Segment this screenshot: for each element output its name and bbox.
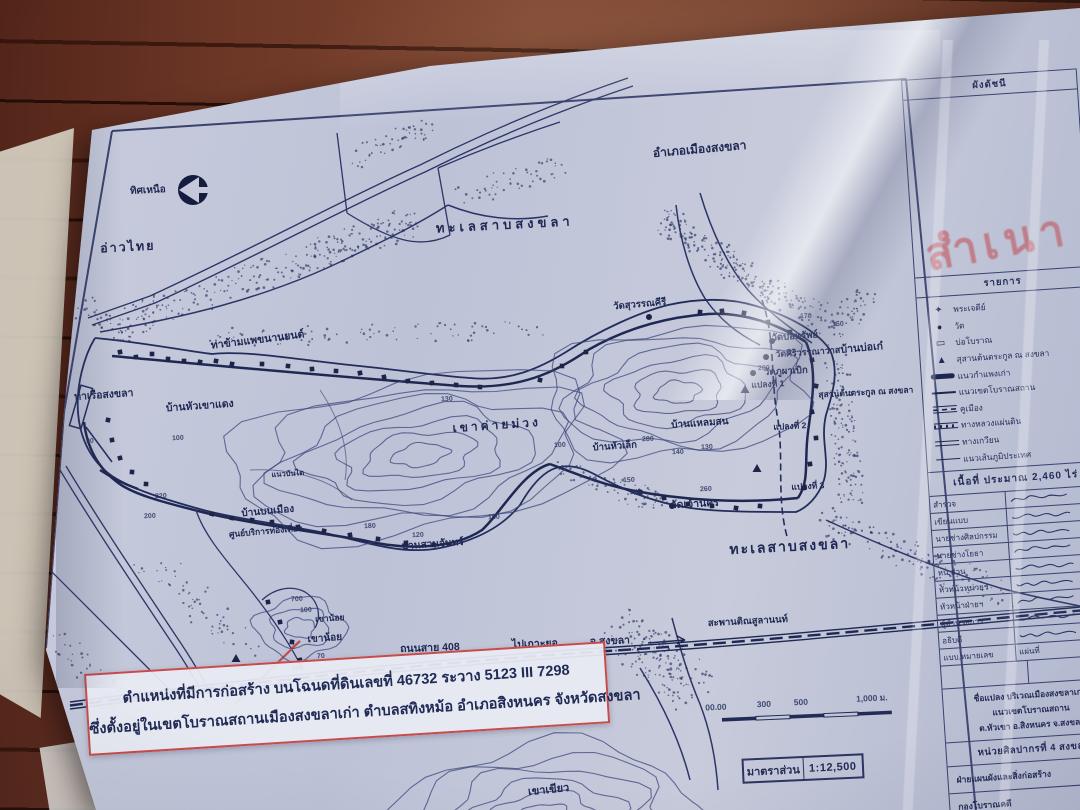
stipple-dot <box>694 234 697 237</box>
stipple-dot <box>119 318 120 319</box>
stipple-dot <box>856 308 858 310</box>
stipple-dot <box>785 292 787 294</box>
map-label: เขาน้อย <box>315 612 345 624</box>
stipple-dot <box>530 173 532 175</box>
building-square <box>454 383 459 388</box>
stipple-dot <box>831 521 833 523</box>
stipple-dot <box>614 489 616 491</box>
stipple-dot <box>654 491 656 493</box>
stipple-dot <box>914 552 917 555</box>
map-label: บ้านสวนจันทร์ <box>401 536 464 552</box>
stipple-dot <box>842 525 844 527</box>
building-square <box>814 436 819 441</box>
stipple-dot <box>693 244 696 247</box>
stipple-dot <box>792 290 793 291</box>
stipple-dot <box>330 261 332 263</box>
stipple-dot <box>742 267 745 270</box>
stipple-dot <box>682 213 684 215</box>
stipple-dot <box>580 465 582 467</box>
contour-ring <box>264 394 569 516</box>
stipple-dot <box>185 289 188 292</box>
stipple-dot <box>853 430 855 432</box>
stipple-dot <box>413 125 415 127</box>
bound-icon <box>929 391 959 395</box>
stipple-dot <box>860 297 863 300</box>
stipple-dot <box>617 492 619 494</box>
stipple-dot <box>644 653 646 655</box>
stipple-dot <box>410 224 412 226</box>
stipple-dot <box>737 264 739 266</box>
stipple-dot <box>662 650 664 652</box>
stipple-dot <box>759 286 762 289</box>
stipple-dot <box>672 700 674 702</box>
stipple-dot <box>684 242 687 245</box>
tri-icon: ▲ <box>926 354 957 367</box>
map-label: อำเภอเมืองสงขลา <box>652 138 747 160</box>
building-square <box>265 599 270 604</box>
stipple-dot <box>849 454 851 456</box>
stipple-dot <box>290 277 291 278</box>
stipple-dot <box>648 670 650 672</box>
stipple-dot <box>368 155 370 157</box>
stipple-dot <box>307 265 309 267</box>
map-label: เขาน้อย <box>307 631 342 645</box>
stipple-dot <box>656 492 658 494</box>
stipple-dot <box>621 487 623 489</box>
stipple-dot <box>328 235 331 238</box>
stipple-dot <box>688 250 691 253</box>
stipple-dot <box>420 128 423 131</box>
stipple-dot <box>833 519 835 521</box>
stipple-dot <box>109 315 111 317</box>
stipple-dot <box>622 649 624 651</box>
stipple-dot <box>282 275 283 276</box>
building-square <box>260 362 265 367</box>
stipple-dot <box>638 633 641 636</box>
building-square <box>130 470 135 475</box>
stipple-dot <box>837 380 839 382</box>
cemetery-triangle-icon <box>741 385 750 393</box>
map-label: ท่าเรือสงขลา <box>74 386 134 403</box>
stipple-dot <box>834 443 836 445</box>
stipple-dot <box>86 668 88 670</box>
stipple-dot <box>244 265 245 266</box>
stipple-dot <box>432 130 434 132</box>
index-map-box: สำเนา <box>903 89 1080 278</box>
stipple-dot <box>820 317 822 319</box>
stipple-dot <box>795 295 797 297</box>
stipple-dot <box>302 267 305 270</box>
legend-label: บ่อโบราณ <box>955 333 993 349</box>
stipple-dot <box>770 280 773 283</box>
stipple-dot <box>852 316 853 317</box>
stipple-dot <box>668 634 671 637</box>
stipple-dot <box>848 404 850 406</box>
stipple-dot <box>670 221 672 223</box>
stipple-dot <box>401 220 403 222</box>
stipple-dot <box>407 214 409 216</box>
stipple-dot <box>648 677 649 678</box>
stipple-dot <box>415 222 417 224</box>
stipple-dot <box>824 319 826 321</box>
stipple-dot <box>156 307 158 309</box>
stipple-dot <box>376 227 379 230</box>
stipple-dot <box>680 670 682 672</box>
stipple-dot <box>392 212 395 215</box>
stipple-dot <box>366 141 368 143</box>
stipple-dot <box>497 187 498 188</box>
stipple-dot <box>83 308 86 311</box>
stipple-dot <box>234 267 236 269</box>
stipple-dot <box>928 560 930 562</box>
stipple-dot <box>413 212 415 214</box>
stipple-dot <box>314 247 317 250</box>
stipple-dot <box>678 224 681 227</box>
stipple-dot <box>673 228 675 230</box>
stipple-dot <box>82 303 84 305</box>
stipple-dot <box>113 337 115 339</box>
stipple-dot <box>372 224 375 227</box>
stipple-dot <box>853 425 855 427</box>
stipple-dot <box>846 373 848 375</box>
stipple-dot <box>146 330 148 332</box>
stipple-dot <box>358 232 360 234</box>
stipple-dot <box>849 418 851 420</box>
stipple-dot <box>380 145 381 146</box>
stipple-dot <box>677 691 679 693</box>
stipple-dot <box>212 633 214 635</box>
stipple-dot <box>855 300 857 302</box>
stipple-dot <box>227 276 229 278</box>
stipple-dot <box>846 517 848 519</box>
building-square <box>166 357 171 362</box>
stipple-dot <box>637 651 640 654</box>
stipple-dot <box>873 526 875 528</box>
stipple-dot <box>842 367 843 368</box>
stipple-dot <box>802 301 804 303</box>
stipple-dot <box>122 339 123 340</box>
stipple-dot <box>841 418 843 420</box>
stipple-dot <box>754 278 755 279</box>
stipple-dot <box>665 226 667 228</box>
stipple-dot <box>684 702 687 705</box>
stipple-dot <box>551 173 553 175</box>
stipple-dot <box>386 334 389 337</box>
stipple-dot <box>486 176 488 178</box>
stipple-dot <box>653 647 654 648</box>
stipple-dot <box>874 293 876 295</box>
stipple-dot <box>830 522 832 524</box>
stipple-dot <box>307 325 309 327</box>
building-square <box>375 536 380 541</box>
stipple-dot <box>133 564 135 566</box>
stipple-dot <box>341 242 343 244</box>
stipple-dot <box>660 222 662 224</box>
stipple-dot <box>824 310 826 312</box>
stipple-dot <box>838 460 841 463</box>
stipple-dot <box>226 625 228 627</box>
stipple-dot <box>521 185 523 187</box>
stipple-dot <box>821 512 823 514</box>
stipple-dot <box>517 183 520 186</box>
stipple-dot <box>463 202 465 204</box>
stipple-dot <box>662 642 664 644</box>
stipple-dot <box>454 324 456 326</box>
stipple-dot <box>173 299 175 301</box>
stipple-dot <box>807 325 809 327</box>
stipple-dot <box>431 123 433 125</box>
stipple-dot <box>618 655 619 656</box>
stipple-dot <box>391 149 394 152</box>
stipple-dot <box>853 427 855 429</box>
stipple-dot <box>100 326 103 329</box>
stipple-dot <box>818 301 819 302</box>
stipple-dot <box>304 333 306 335</box>
contour-number: 200 <box>144 513 156 521</box>
stipple-dot <box>846 453 847 454</box>
stipple-dot <box>691 233 693 235</box>
stipple-dot <box>546 160 548 162</box>
stipple-dot <box>892 533 895 536</box>
stipple-dot <box>538 161 540 163</box>
stipple-dot <box>166 316 167 317</box>
contour-number: 130 <box>701 444 713 452</box>
stipple-dot <box>631 632 632 633</box>
stipple-dot <box>728 275 730 277</box>
stipple-dot <box>371 324 373 326</box>
stipple-dot <box>659 665 661 667</box>
stipple-dot <box>831 382 833 384</box>
contour-ring <box>390 443 452 468</box>
stipple-dot <box>919 568 921 570</box>
building-square <box>809 357 814 362</box>
stipple-dot <box>750 265 753 268</box>
stipple-dot <box>318 240 320 242</box>
stipple-dot <box>681 235 683 237</box>
stipple-dot <box>668 694 670 696</box>
stipple-dot <box>668 688 671 691</box>
stipple-dot <box>854 440 856 442</box>
stipple-dot <box>804 300 806 302</box>
stipple-dot <box>158 581 159 582</box>
stipple-dot <box>120 330 121 331</box>
stipple-dot <box>254 655 256 657</box>
stipple-dot <box>182 589 185 592</box>
stipple-dot <box>198 285 200 287</box>
stipple-dot <box>703 682 705 684</box>
stipple-dot <box>679 220 682 223</box>
stipple-dot <box>596 485 598 487</box>
stipple-dot <box>171 310 173 312</box>
stipple-dot <box>613 479 614 480</box>
stipple-dot <box>345 249 347 251</box>
stipple-dot <box>535 170 537 172</box>
stipple-dot <box>64 644 66 646</box>
stipple-dot <box>344 245 346 247</box>
stipple-dot <box>141 567 144 570</box>
map-label: วัดภูผาเบิก <box>764 365 809 379</box>
stipple-dot <box>160 562 162 564</box>
stipple-dot <box>232 632 234 634</box>
stipple-dot <box>746 283 748 285</box>
stipple-dot <box>792 304 794 306</box>
stipple-dot <box>729 272 730 273</box>
stipple-dot <box>715 242 718 245</box>
stipple-dot <box>205 617 207 619</box>
stipple-dot <box>836 363 838 365</box>
stipple-dot <box>401 230 404 233</box>
building-square <box>229 515 234 520</box>
stipple-dot <box>259 274 261 276</box>
stipple-dot <box>666 687 667 688</box>
contour-number: 240 <box>630 489 642 497</box>
stipple-dot <box>860 484 862 486</box>
stipple-dot <box>250 267 252 269</box>
stipple-dot <box>847 415 849 417</box>
stipple-dot <box>726 246 728 248</box>
stipple-dot <box>182 602 184 604</box>
stipple-dot <box>785 299 787 301</box>
stipple-dot <box>227 629 229 631</box>
stipple-dot <box>175 576 176 577</box>
building-square <box>560 364 565 369</box>
stipple-dot <box>619 626 622 629</box>
stipple-dot <box>190 605 191 606</box>
stipple-dot <box>127 327 130 330</box>
stipple-dot <box>858 500 859 501</box>
stipple-dot <box>395 243 398 246</box>
stipple-dot <box>834 333 836 335</box>
building-square <box>289 639 294 644</box>
stipple-dot <box>852 521 853 522</box>
stipple-dot <box>266 279 268 281</box>
stipple-dot <box>194 601 197 604</box>
stipple-dot <box>852 531 855 534</box>
stipple-dot <box>214 292 215 293</box>
stipple-dot <box>332 248 335 251</box>
stipple-dot <box>239 333 241 335</box>
stipple-dot <box>733 256 735 258</box>
stipple-dot <box>772 286 774 288</box>
stipple-dot <box>649 638 651 640</box>
stipple-dot <box>367 248 369 250</box>
stipple-dot <box>119 323 121 325</box>
stipple-dot <box>196 598 198 600</box>
stipple-dot <box>380 235 382 237</box>
stipple-dot <box>555 162 557 164</box>
stipple-dot <box>117 339 118 340</box>
stipple-dot <box>917 560 918 561</box>
stipple-dot <box>578 474 580 476</box>
stipple-dot <box>857 310 859 312</box>
stipple-dot <box>851 528 853 530</box>
stipple-dot <box>359 161 361 163</box>
stipple-dot <box>880 544 882 546</box>
stipple-dot <box>295 255 297 257</box>
stipple-dot <box>783 292 784 293</box>
stipple-dot <box>638 506 640 508</box>
stipple-dot <box>746 275 748 277</box>
stipple-dot <box>687 243 690 246</box>
building-square <box>117 349 122 354</box>
stipple-dot <box>166 297 168 299</box>
stipple-dot <box>741 277 744 280</box>
stipple-dot <box>863 300 864 301</box>
building-square <box>719 308 724 313</box>
stipple-dot <box>174 570 176 572</box>
stipple-dot <box>652 656 654 658</box>
stipple-dot <box>645 667 647 669</box>
stipple-dot <box>644 485 645 486</box>
stipple-dot <box>888 556 890 558</box>
stipple-dot <box>128 336 130 338</box>
stipple-dot <box>690 677 692 679</box>
stipple-dot <box>644 502 647 505</box>
stipple-dot <box>762 294 764 296</box>
temple-dot-icon <box>750 370 756 376</box>
stipple-dot <box>218 279 220 281</box>
stipple-dot <box>683 653 686 656</box>
stipple-dot <box>665 662 666 663</box>
stipple-dot <box>135 306 137 308</box>
building-square <box>182 359 187 364</box>
stipple-dot <box>847 307 849 309</box>
stipple-dot <box>211 630 212 631</box>
stipple-dot <box>409 222 411 224</box>
stipple-dot <box>317 237 318 238</box>
contour-ring <box>559 338 798 451</box>
stipple-dot <box>352 225 354 227</box>
stipple-dot <box>632 649 634 651</box>
stipple-dot <box>218 627 220 629</box>
stipple-dot <box>529 185 532 188</box>
stipple-dot <box>664 229 666 231</box>
stipple-dot <box>611 626 613 628</box>
stipple-dot <box>733 276 735 278</box>
stipple-dot <box>721 265 724 268</box>
stipple-dot <box>410 214 411 215</box>
stipple-dot <box>306 254 308 256</box>
stipple-dot <box>521 328 523 330</box>
stipple-dot <box>250 648 252 650</box>
stipple-dot <box>554 177 556 179</box>
map-label: อ่าวไทย <box>100 238 156 256</box>
stipple-dot <box>300 266 302 268</box>
stipple-dot <box>203 288 205 290</box>
stipple-dot <box>227 290 229 292</box>
stipple-dot <box>179 299 181 301</box>
stipple-dot <box>474 322 477 325</box>
stipple-dot <box>402 128 405 131</box>
stipple-dot <box>734 251 735 252</box>
stipple-dot <box>873 301 875 303</box>
stipple-dot <box>860 319 862 321</box>
stipple-dot <box>416 225 418 227</box>
stipple-dot <box>69 645 71 647</box>
stipple-dot <box>555 165 556 166</box>
stipple-dot <box>661 504 663 506</box>
stipple-dot <box>711 675 713 677</box>
stipple-dot <box>263 286 266 289</box>
stipple-dot <box>485 326 487 328</box>
stipple-dot <box>536 175 538 177</box>
map-label: แนวบันได <box>271 467 304 479</box>
contour-number: 200 <box>758 365 770 373</box>
stipple-dot <box>850 474 852 476</box>
stipple-dot <box>192 599 193 600</box>
stipple-dot <box>779 287 780 288</box>
stipple-dot <box>492 184 494 186</box>
